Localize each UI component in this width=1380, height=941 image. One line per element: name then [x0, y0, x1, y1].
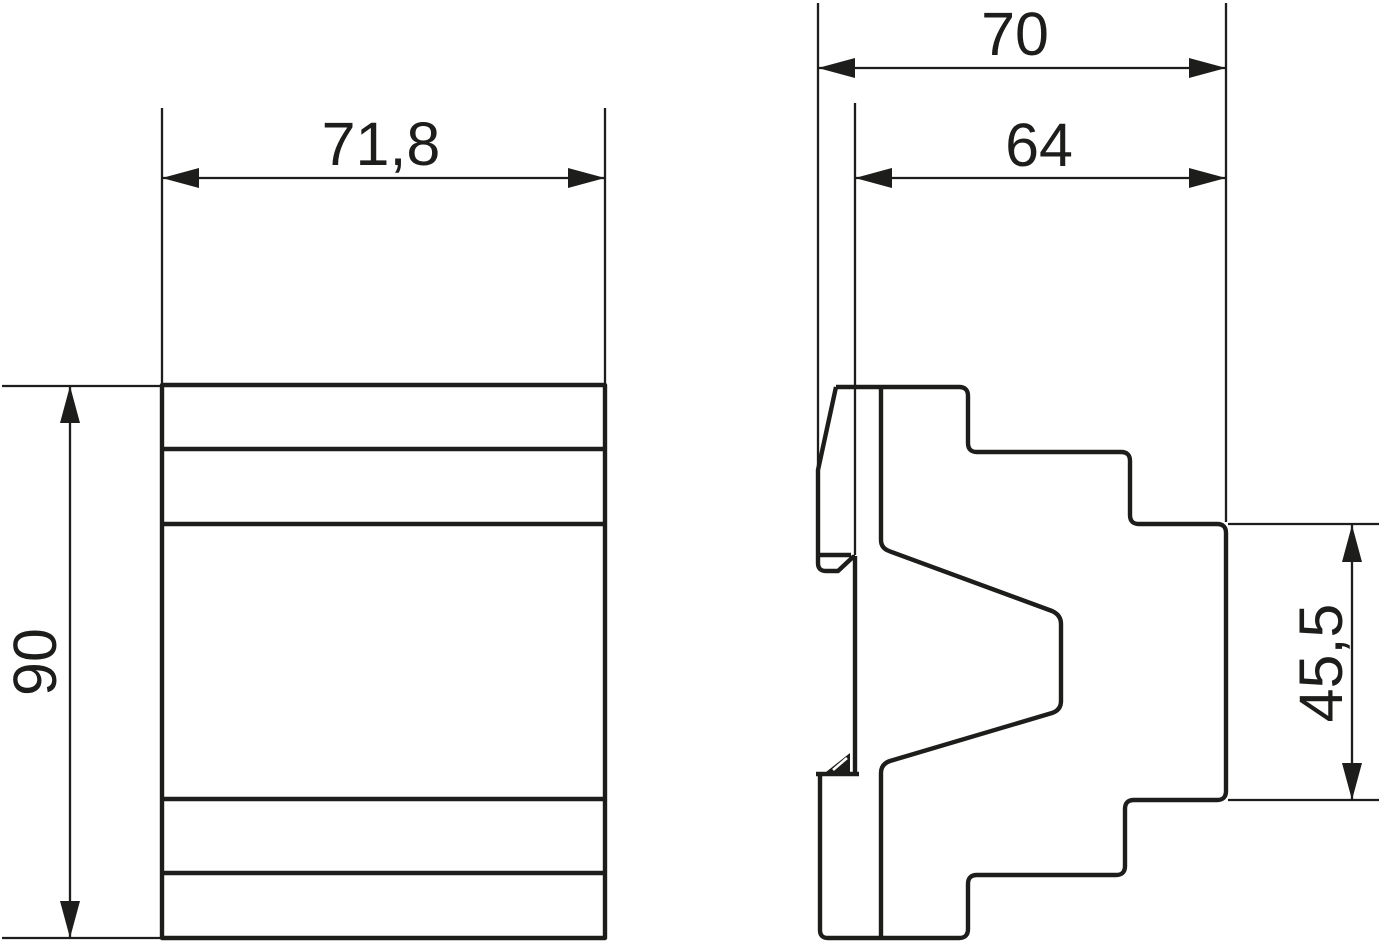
- arrowhead-front-width-right: [568, 168, 605, 188]
- front-view-outline: [162, 385, 605, 938]
- side-view: [816, 387, 1226, 938]
- dimension-drawing: 71,8 90 70 64: [0, 0, 1380, 941]
- dimension-label-total-depth: 70: [981, 0, 1049, 68]
- arrowhead-front-section-bottom: [1342, 763, 1362, 800]
- dimension-side-body-depth: 64: [855, 103, 1226, 555]
- dimension-label-front-width: 71,8: [322, 110, 441, 178]
- din-clip-spring-triangle: [826, 753, 850, 772]
- dimension-label-body-depth: 64: [1005, 111, 1073, 179]
- side-view-transition-wedge: [881, 387, 1061, 938]
- arrowhead-body-depth-left: [855, 168, 892, 188]
- arrowhead-front-height-bottom: [60, 901, 80, 938]
- dimension-label-front-height: 90: [1, 628, 69, 696]
- dimension-label-front-section-height: 45,5: [1287, 604, 1355, 723]
- arrowhead-total-depth-left: [818, 58, 855, 78]
- arrowhead-front-section-top: [1342, 525, 1362, 562]
- arrowhead-front-height-top: [60, 386, 80, 423]
- arrowhead-total-depth-right: [1189, 58, 1226, 78]
- dimension-front-height: 90: [1, 386, 160, 938]
- dimension-front-width: 71,8: [162, 108, 605, 383]
- din-clip-upper-hook: [818, 387, 855, 571]
- dimension-side-front-height: 45,5: [1228, 524, 1379, 800]
- front-view: [162, 385, 605, 938]
- technical-drawing-canvas: 71,8 90 70 64: [0, 0, 1380, 941]
- arrowhead-body-depth-right: [1189, 168, 1226, 188]
- arrowhead-front-width-left: [162, 168, 199, 188]
